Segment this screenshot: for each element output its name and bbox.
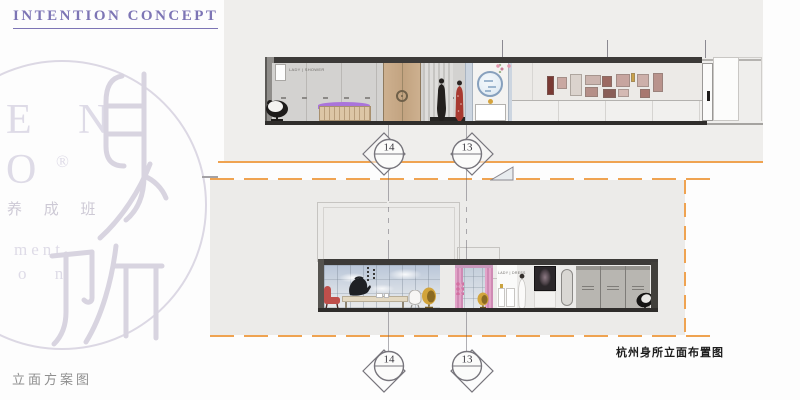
long-table — [342, 296, 408, 302]
door-handle — [707, 91, 710, 101]
cabinet-base — [512, 101, 702, 121]
yellow-egg-chair-icon — [421, 287, 437, 308]
red-armchair-icon — [322, 285, 342, 310]
elevation-upper: LADY | SHOWER — [265, 40, 765, 126]
design-board-page: E N O ® 养 成 班 ment o n — [0, 0, 800, 400]
registered-mark: ® — [56, 152, 69, 172]
bench-seat — [319, 106, 371, 121]
teapot-sculpture-icon — [346, 276, 372, 296]
flower-bouquet-icon — [456, 282, 464, 295]
logo-line-2: O — [6, 146, 36, 194]
display-wall — [512, 63, 702, 121]
table-items — [376, 293, 383, 298]
globe-art-icon — [477, 71, 503, 97]
curtain-valance — [455, 265, 493, 268]
table-items — [384, 293, 389, 298]
glass-door — [702, 63, 713, 121]
svg-text:13: 13 — [462, 354, 474, 366]
footer-label: 立面方案图 — [12, 369, 92, 388]
artwork-frame — [534, 266, 556, 291]
svg-text:14: 14 — [384, 142, 396, 154]
grid-marker-13-bottom: 13 — [435, 334, 499, 398]
wall-right — [651, 262, 658, 312]
wood-door — [383, 63, 421, 121]
dressing-nook: LADY | DRESS — [497, 265, 517, 308]
floor-line — [318, 308, 658, 312]
capsule-cabin — [561, 269, 573, 306]
logo-line-3: 养 成 班 — [7, 198, 105, 219]
lower-board-right-border — [684, 180, 686, 335]
grid-line-dash-mask — [465, 196, 467, 240]
grid-marker-14-top: 14 — [357, 122, 421, 186]
floor-line-ext — [707, 123, 763, 125]
door-emblem-icon — [396, 90, 408, 102]
grid-marker-14-bottom: 14 — [357, 334, 421, 398]
logo-glyph-shen-icon — [92, 68, 172, 243]
reception-counter — [475, 104, 506, 121]
pillar — [465, 63, 473, 121]
bowl-chair-icon — [262, 92, 292, 124]
white-chair-icon — [408, 290, 422, 308]
panel-below-artwork — [534, 291, 556, 308]
mustard-chair-icon — [477, 292, 489, 308]
grid-line-dash-mask — [387, 196, 389, 240]
calligraphy-marks — [373, 269, 375, 279]
svg-text:13: 13 — [462, 142, 474, 154]
cabinet-door — [275, 64, 286, 81]
grid-marker-13-top: 13 — [435, 122, 499, 186]
elevation-lower: LADY | DRESS — [318, 252, 662, 314]
figure-woman-white-icon — [516, 273, 528, 310]
side-opening — [713, 57, 739, 121]
figure-woman-black-icon — [435, 78, 448, 121]
drawing-caption: 杭州身所立面布置图 — [616, 344, 724, 360]
svg-text:14: 14 — [384, 354, 396, 366]
logo-glyph-suo-icon — [44, 238, 169, 348]
room-label-upper: LADY | SHOWER — [289, 67, 325, 72]
page-title: INTENTION CONCEPT — [13, 8, 218, 29]
